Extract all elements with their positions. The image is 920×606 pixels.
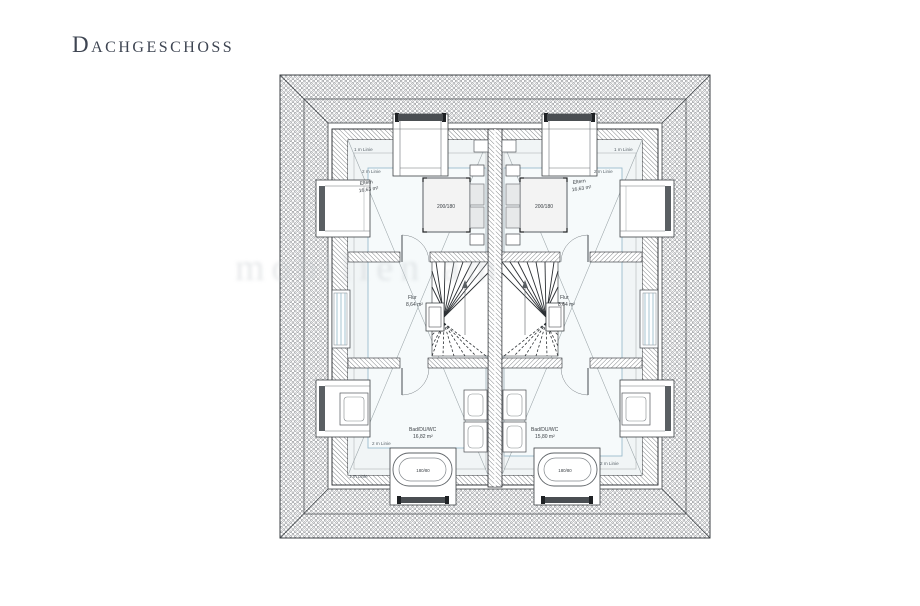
bed-size-left: 200/180 bbox=[437, 204, 455, 210]
two-m-label-bottom-right: 2 m Linie bbox=[600, 461, 619, 466]
floor-plan: 1 m Linie 1 m Linie 1 m Linie 2 m Linie … bbox=[278, 73, 712, 540]
bath-label-right: Bad/DU/WC 15,80 m² bbox=[531, 427, 559, 440]
bath-label-left: Bad/DU/WC 16,82 m² bbox=[409, 427, 437, 440]
one-m-label-top-right: 1 m Linie bbox=[614, 147, 633, 152]
svg-text:8,64 m²: 8,64 m² bbox=[558, 302, 575, 308]
svg-text:15,80 m²: 15,80 m² bbox=[535, 434, 555, 440]
bed-size-right: 200/180 bbox=[535, 204, 553, 210]
page: Dachgeschoss bbox=[0, 0, 920, 606]
svg-text:Bad/DU/WC: Bad/DU/WC bbox=[531, 427, 559, 433]
party-wall bbox=[488, 129, 502, 487]
svg-text:Bad/DU/WC: Bad/DU/WC bbox=[409, 427, 437, 433]
two-m-label-bottom-left: 2 m Linie bbox=[372, 441, 391, 446]
two-m-label-top-left: 2 m Linie bbox=[362, 169, 381, 174]
svg-text:8,64 m²: 8,64 m² bbox=[406, 302, 423, 308]
page-title: Dachgeschoss bbox=[72, 32, 234, 58]
svg-text:16,82 m²: 16,82 m² bbox=[413, 434, 433, 440]
tub-size-right: 180/80 bbox=[558, 468, 572, 473]
one-m-label-top-left: 1 m Linie bbox=[354, 147, 373, 152]
two-m-label-top-right: 2 m Linie bbox=[594, 169, 613, 174]
one-m-label-bottom-left: 1 m Linie bbox=[349, 474, 368, 479]
svg-text:Flur: Flur bbox=[408, 295, 417, 301]
svg-text:Flur: Flur bbox=[560, 295, 569, 301]
tub-size-left: 180/80 bbox=[416, 468, 430, 473]
